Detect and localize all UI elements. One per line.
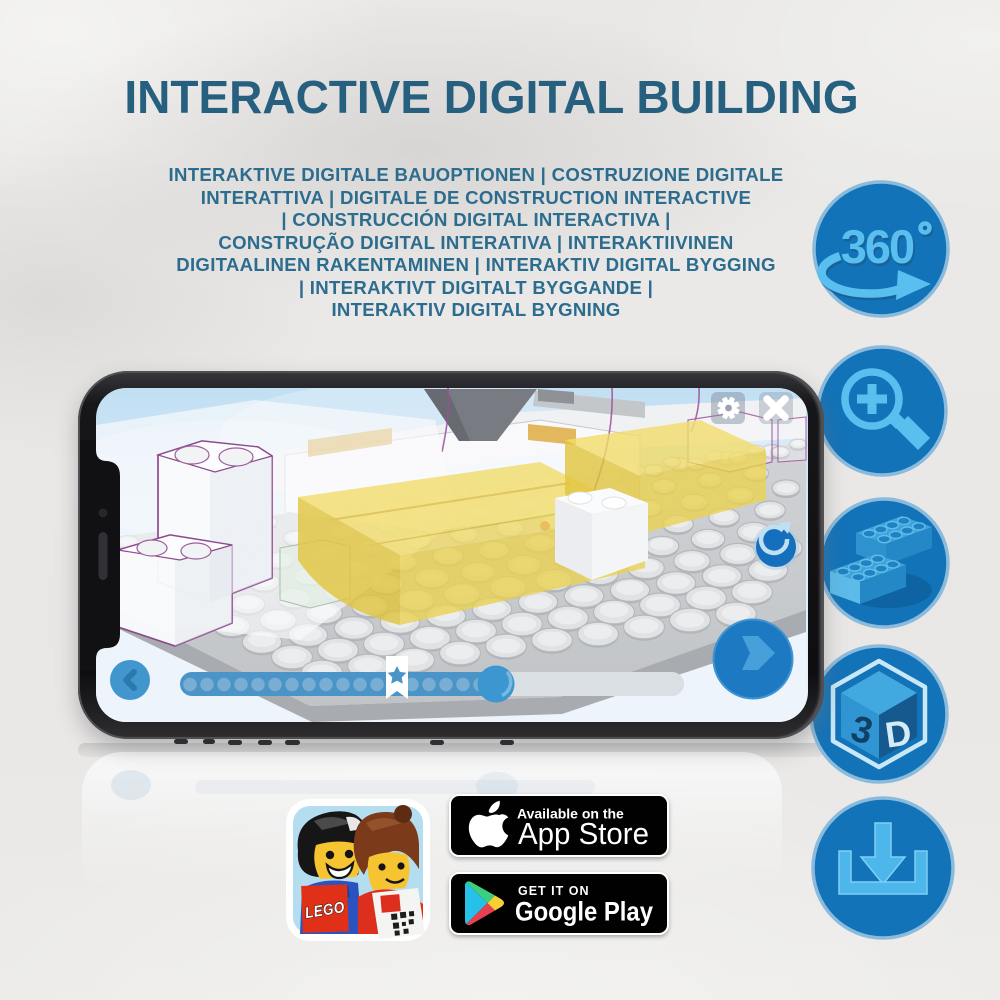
svg-text:360: 360 [841,220,914,273]
svg-text:Google Play: Google Play [515,897,653,927]
svg-text:App Store: App Store [518,816,649,851]
